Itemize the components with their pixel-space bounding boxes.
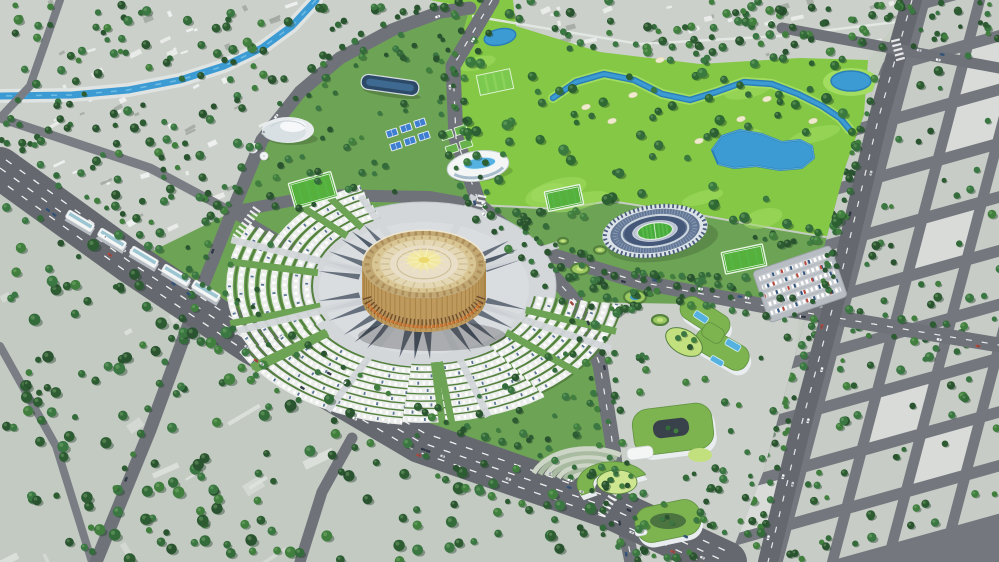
tree bbox=[893, 454, 899, 460]
tree bbox=[226, 548, 236, 558]
tree-highlight bbox=[520, 501, 523, 504]
tree bbox=[711, 464, 719, 472]
tree bbox=[938, 0, 944, 6]
tree bbox=[816, 470, 822, 476]
tree bbox=[891, 259, 897, 265]
tree bbox=[784, 239, 792, 247]
tree-highlight bbox=[429, 414, 432, 417]
tree-highlight bbox=[224, 24, 227, 27]
tree bbox=[118, 411, 128, 421]
tree-highlight bbox=[147, 65, 150, 68]
tree bbox=[728, 294, 734, 300]
tree bbox=[81, 544, 88, 551]
tree bbox=[37, 137, 45, 145]
tree-highlight bbox=[620, 440, 623, 443]
tree-highlight bbox=[591, 285, 594, 288]
tree-highlight bbox=[287, 548, 291, 552]
tree bbox=[573, 423, 580, 430]
tree-highlight bbox=[258, 517, 261, 520]
tree bbox=[150, 346, 160, 356]
tree bbox=[673, 26, 681, 34]
tree bbox=[47, 3, 54, 10]
tree-highlight bbox=[855, 412, 858, 415]
tree-highlight bbox=[61, 454, 64, 457]
tree bbox=[569, 318, 575, 324]
tree bbox=[257, 19, 265, 27]
tree bbox=[565, 273, 574, 282]
tree bbox=[845, 305, 854, 314]
tree bbox=[163, 59, 171, 67]
tree-highlight bbox=[567, 157, 571, 161]
tree-highlight bbox=[35, 399, 38, 402]
tree bbox=[665, 515, 670, 520]
tree-highlight bbox=[423, 410, 426, 413]
tree-highlight bbox=[49, 277, 53, 281]
tree bbox=[255, 180, 261, 186]
tree bbox=[306, 93, 311, 98]
tree-highlight bbox=[581, 214, 584, 217]
tree bbox=[783, 404, 788, 409]
tree-highlight bbox=[715, 274, 718, 277]
tree bbox=[142, 302, 151, 311]
tree bbox=[748, 474, 753, 479]
tree bbox=[881, 203, 888, 210]
tree bbox=[825, 6, 831, 12]
tree bbox=[771, 440, 778, 447]
tree bbox=[228, 45, 237, 54]
tree bbox=[535, 89, 541, 95]
tree bbox=[942, 178, 947, 183]
tree-highlight bbox=[152, 461, 155, 464]
tree bbox=[234, 301, 238, 305]
tree-highlight bbox=[183, 274, 185, 276]
tree bbox=[862, 29, 869, 36]
tree-highlight bbox=[13, 31, 16, 34]
tree bbox=[569, 247, 575, 253]
tree bbox=[452, 12, 459, 19]
tree bbox=[690, 36, 698, 44]
tree bbox=[113, 140, 120, 147]
tree bbox=[552, 413, 557, 418]
tree bbox=[268, 527, 276, 535]
tree bbox=[450, 66, 456, 72]
tree bbox=[745, 291, 751, 297]
tree bbox=[810, 299, 815, 304]
tree bbox=[76, 254, 81, 259]
tree bbox=[113, 485, 119, 491]
tree-highlight bbox=[452, 502, 455, 505]
tree-highlight bbox=[911, 338, 914, 341]
tree bbox=[798, 341, 806, 349]
tree-highlight bbox=[66, 433, 70, 437]
tree bbox=[554, 543, 564, 553]
tree bbox=[784, 333, 792, 341]
tree bbox=[197, 41, 205, 49]
tree bbox=[974, 167, 980, 173]
tree-highlight bbox=[870, 253, 873, 256]
tree bbox=[4, 140, 10, 146]
tree bbox=[103, 24, 111, 32]
tree bbox=[453, 465, 459, 471]
tree bbox=[609, 521, 615, 527]
tree-highlight bbox=[274, 175, 276, 177]
tree bbox=[649, 153, 656, 160]
tree bbox=[470, 538, 477, 545]
tree-highlight bbox=[95, 70, 98, 73]
tree bbox=[512, 465, 520, 473]
tree bbox=[624, 460, 629, 465]
tree-highlight bbox=[353, 445, 356, 448]
tree-highlight bbox=[255, 498, 258, 501]
tree-highlight bbox=[639, 190, 642, 193]
tree bbox=[166, 184, 175, 193]
tree-highlight bbox=[214, 202, 217, 205]
tree bbox=[403, 438, 413, 448]
tree bbox=[848, 128, 856, 136]
tree-highlight bbox=[64, 283, 67, 286]
tree bbox=[736, 81, 744, 89]
tree-highlight bbox=[962, 323, 965, 326]
tree-highlight bbox=[908, 523, 911, 526]
tree-highlight bbox=[112, 203, 115, 206]
tree-highlight bbox=[778, 296, 781, 299]
tree bbox=[635, 525, 643, 533]
tree bbox=[775, 91, 783, 99]
tree-highlight bbox=[488, 212, 491, 215]
tree bbox=[341, 18, 348, 25]
tree-highlight bbox=[767, 32, 770, 35]
tree bbox=[480, 460, 488, 468]
tree bbox=[625, 483, 630, 488]
tree-highlight bbox=[778, 242, 781, 245]
tree bbox=[320, 61, 327, 68]
tree-highlight bbox=[59, 443, 63, 447]
tree bbox=[762, 237, 767, 242]
tree bbox=[345, 186, 352, 193]
tree bbox=[669, 43, 676, 50]
tree bbox=[775, 5, 783, 13]
tree bbox=[802, 128, 810, 136]
tree bbox=[29, 314, 41, 326]
tree bbox=[84, 195, 89, 200]
tree bbox=[762, 312, 770, 320]
tree bbox=[789, 24, 796, 31]
tree-highlight bbox=[689, 24, 692, 27]
tree bbox=[749, 481, 754, 486]
tree bbox=[799, 556, 805, 562]
tree-highlight bbox=[896, 137, 899, 140]
tree-highlight bbox=[785, 241, 788, 244]
tree-highlight bbox=[688, 275, 691, 278]
tree bbox=[642, 366, 649, 373]
tree bbox=[304, 445, 315, 456]
tree-highlight bbox=[603, 482, 606, 485]
tree bbox=[452, 51, 458, 57]
tree-highlight bbox=[36, 23, 39, 26]
tree bbox=[935, 281, 941, 287]
tree-highlight bbox=[18, 244, 22, 248]
tree bbox=[173, 390, 180, 397]
tree-highlight bbox=[439, 132, 442, 135]
tree bbox=[529, 435, 534, 440]
tree bbox=[110, 109, 118, 117]
tree bbox=[519, 429, 527, 437]
tree-highlight bbox=[115, 177, 118, 180]
tree-highlight bbox=[34, 35, 37, 38]
tree-highlight bbox=[4, 423, 7, 426]
tree-highlight bbox=[634, 550, 637, 553]
tree bbox=[596, 442, 602, 448]
tree bbox=[78, 370, 85, 377]
tree-highlight bbox=[481, 461, 484, 464]
tree bbox=[155, 245, 163, 253]
tree bbox=[589, 376, 594, 381]
tree bbox=[978, 20, 983, 25]
tree bbox=[435, 473, 440, 478]
tree-highlight bbox=[364, 496, 368, 500]
tree bbox=[130, 451, 136, 457]
tree bbox=[113, 506, 123, 516]
tree-highlight bbox=[645, 24, 648, 27]
tree bbox=[839, 56, 846, 63]
tree bbox=[465, 135, 471, 141]
tree bbox=[891, 334, 897, 340]
tree bbox=[100, 437, 111, 448]
tree bbox=[867, 533, 876, 542]
tree-highlight bbox=[850, 34, 853, 37]
tree bbox=[602, 194, 613, 205]
tree bbox=[168, 335, 175, 342]
tree bbox=[515, 15, 523, 23]
tree-highlight bbox=[578, 251, 581, 254]
tree bbox=[451, 104, 456, 109]
tree bbox=[882, 312, 888, 318]
tree bbox=[252, 85, 258, 91]
tree bbox=[113, 284, 118, 289]
tree bbox=[878, 2, 885, 9]
tree bbox=[567, 45, 573, 51]
tree bbox=[358, 373, 363, 378]
tree-highlight bbox=[722, 400, 725, 403]
tree-highlight bbox=[995, 36, 998, 39]
tree bbox=[197, 473, 205, 481]
tree bbox=[168, 477, 178, 487]
tree bbox=[814, 482, 821, 489]
tree-highlight bbox=[733, 10, 736, 13]
tree-highlight bbox=[474, 153, 477, 156]
tree bbox=[81, 492, 92, 503]
tree-highlight bbox=[773, 441, 776, 444]
tree-highlight bbox=[448, 518, 452, 522]
tree bbox=[805, 224, 813, 232]
tree bbox=[429, 3, 437, 11]
tree bbox=[577, 39, 584, 46]
tree-highlight bbox=[465, 159, 468, 162]
tree bbox=[777, 98, 784, 105]
tree bbox=[288, 331, 296, 339]
tree bbox=[64, 124, 71, 131]
tree bbox=[983, 22, 989, 28]
tree-highlight bbox=[115, 365, 119, 369]
tree bbox=[558, 144, 569, 155]
tree bbox=[78, 47, 86, 55]
tree-highlight bbox=[309, 65, 312, 68]
tree-highlight bbox=[37, 438, 41, 442]
tree bbox=[324, 394, 334, 404]
tree bbox=[26, 369, 33, 376]
tree bbox=[285, 547, 296, 558]
tree-highlight bbox=[848, 189, 851, 192]
tree-highlight bbox=[168, 545, 172, 549]
tree bbox=[722, 530, 727, 535]
tree bbox=[544, 249, 551, 256]
tree bbox=[201, 217, 209, 225]
tree-highlight bbox=[792, 101, 795, 104]
tree bbox=[205, 190, 212, 197]
tree-highlight bbox=[556, 545, 560, 549]
tree bbox=[606, 419, 611, 424]
tree-highlight bbox=[637, 132, 640, 135]
tree-highlight bbox=[532, 271, 535, 274]
tree bbox=[636, 388, 644, 396]
tree bbox=[768, 21, 775, 28]
tree bbox=[104, 362, 113, 371]
tree-highlight bbox=[841, 418, 844, 421]
tree bbox=[607, 455, 613, 461]
tree bbox=[753, 235, 758, 240]
tree bbox=[472, 216, 480, 224]
tree bbox=[814, 229, 822, 237]
tree bbox=[864, 262, 869, 267]
tree bbox=[263, 450, 270, 457]
tree bbox=[32, 142, 38, 148]
tree bbox=[762, 520, 770, 528]
tree bbox=[984, 11, 990, 17]
tree-highlight bbox=[329, 452, 332, 455]
tree-highlight bbox=[588, 255, 591, 258]
tree-highlight bbox=[306, 447, 310, 451]
tree-highlight bbox=[15, 16, 18, 19]
tree bbox=[512, 417, 518, 423]
tree bbox=[635, 267, 641, 273]
tree-highlight bbox=[768, 497, 771, 500]
tree bbox=[255, 469, 263, 477]
tree bbox=[566, 8, 575, 17]
tree bbox=[728, 428, 734, 434]
tree-highlight bbox=[706, 95, 709, 98]
tree bbox=[613, 41, 619, 47]
tree bbox=[682, 24, 688, 30]
tree-highlight bbox=[201, 537, 205, 541]
tree-highlight bbox=[473, 217, 476, 220]
tree-highlight bbox=[414, 546, 418, 550]
tree-highlight bbox=[776, 7, 779, 10]
tree bbox=[520, 213, 527, 220]
tree bbox=[139, 341, 146, 348]
tree bbox=[988, 210, 997, 219]
tree bbox=[649, 114, 656, 121]
tree bbox=[110, 49, 118, 57]
tree bbox=[24, 380, 32, 388]
tree bbox=[618, 439, 626, 447]
tree-highlight bbox=[616, 170, 620, 174]
tree-highlight bbox=[174, 391, 177, 394]
tree bbox=[348, 138, 356, 146]
tree bbox=[653, 288, 659, 294]
tree bbox=[660, 517, 665, 522]
tree-highlight bbox=[506, 10, 509, 13]
tree-highlight bbox=[968, 187, 971, 190]
tree bbox=[214, 217, 219, 222]
tree bbox=[92, 156, 101, 165]
tree bbox=[661, 501, 667, 507]
tree bbox=[166, 544, 177, 555]
tree bbox=[852, 143, 861, 152]
tree-highlight bbox=[458, 431, 461, 434]
tree-highlight bbox=[180, 316, 183, 319]
tree bbox=[493, 508, 502, 517]
tree bbox=[845, 175, 853, 183]
tree bbox=[296, 397, 302, 403]
tree bbox=[271, 202, 278, 209]
tree bbox=[132, 214, 140, 222]
tree-highlight bbox=[590, 470, 592, 472]
tree bbox=[600, 507, 607, 514]
tree bbox=[232, 185, 238, 191]
tree bbox=[703, 499, 709, 505]
tree bbox=[697, 508, 705, 516]
tree bbox=[709, 287, 714, 292]
tree-highlight bbox=[691, 37, 694, 40]
tree bbox=[654, 140, 664, 150]
tree bbox=[836, 229, 842, 235]
tree-highlight bbox=[651, 272, 654, 275]
tree-highlight bbox=[870, 12, 873, 15]
tree bbox=[888, 243, 894, 249]
tree bbox=[587, 254, 594, 261]
tree-highlight bbox=[220, 380, 223, 383]
tree-highlight bbox=[935, 294, 938, 297]
tree bbox=[32, 496, 42, 506]
tree bbox=[471, 126, 481, 136]
tree-highlight bbox=[790, 296, 793, 299]
tree-highlight bbox=[573, 208, 576, 211]
tree bbox=[259, 410, 270, 421]
tree bbox=[880, 297, 887, 304]
tree bbox=[747, 2, 756, 11]
tree bbox=[555, 500, 565, 510]
tree bbox=[175, 165, 180, 170]
tree-highlight bbox=[809, 324, 812, 327]
tree-highlight bbox=[785, 335, 788, 338]
tree bbox=[475, 59, 485, 69]
tree bbox=[94, 524, 105, 535]
tree-highlight bbox=[632, 272, 635, 275]
tree bbox=[981, 293, 987, 299]
tree bbox=[637, 189, 646, 198]
tree bbox=[848, 33, 856, 41]
tree bbox=[7, 115, 14, 122]
tree-highlight bbox=[185, 17, 188, 20]
tree bbox=[840, 358, 844, 362]
tree bbox=[90, 165, 96, 171]
tree bbox=[359, 135, 363, 139]
tree-highlight bbox=[199, 42, 202, 45]
tree-highlight bbox=[760, 456, 763, 459]
tree-highlight bbox=[935, 68, 938, 71]
tree bbox=[791, 100, 800, 109]
tree bbox=[800, 362, 808, 370]
